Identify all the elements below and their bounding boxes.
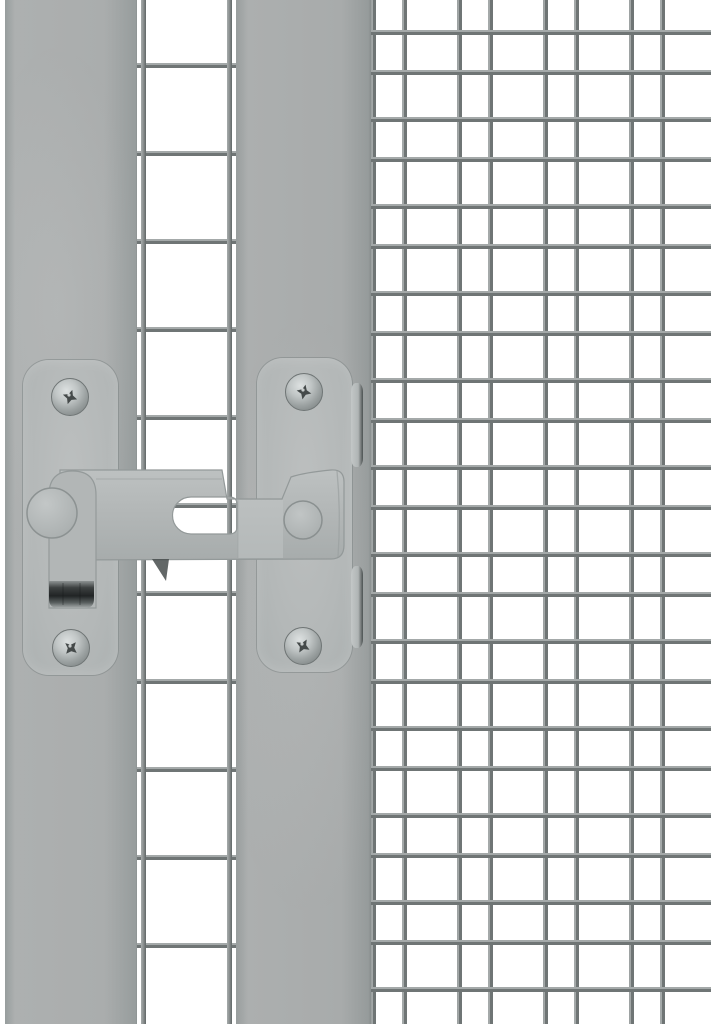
door-mesh-opening (137, 0, 236, 1024)
fine-wire-mesh-panel (371, 0, 711, 1024)
mesh-vertical-wire (227, 0, 232, 1024)
latch-mounting-plate-right (257, 358, 352, 672)
keeper-clip-top (351, 383, 363, 467)
product-photo-canvas (0, 0, 711, 1024)
keeper-clip-bottom (351, 566, 363, 648)
mesh-vertical-wire (141, 0, 146, 1024)
latch-mounting-plate-left (23, 360, 118, 675)
